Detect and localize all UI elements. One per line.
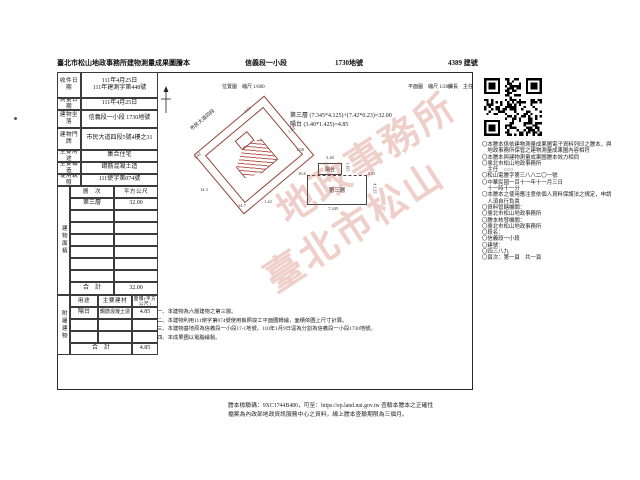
info-label: 使用執照 (57, 174, 81, 186)
info-label: 建物坐落 (57, 110, 81, 128)
north-arrow-icon (160, 86, 172, 114)
notes-block: 一、本建物為六層建物之第三層。 二、本建物利用111使字第074號使用執照竣工平… (157, 308, 457, 342)
plan-dim-top: 3.40 (326, 156, 334, 161)
info-value: 市民大道四段5號4樓之31 (81, 128, 158, 150)
area-total-value: 32.00 (114, 282, 158, 295)
empty-cell (70, 246, 114, 258)
plan-scale-label: 平面圖 縮尺 1/200 (408, 85, 451, 90)
location-dim: 1.42 (264, 200, 272, 205)
document-title: 臺北市松山地政事務所建物測量成果圖謄本 (57, 58, 190, 68)
info-value: 111年4月25日 111年建測字第448號 (81, 72, 158, 98)
empty-cell (70, 234, 114, 246)
info-value-line2: 111年建測字第448號 (93, 85, 147, 92)
info-label: 測量日期 (57, 98, 81, 110)
empty-cell (114, 258, 158, 270)
empty-cell (70, 258, 114, 270)
location-scale-label: 位置圖 縮尺 1/600 (222, 85, 265, 90)
info-value: 鋼筋混凝土造 (81, 162, 158, 174)
annex-use: 陽台 (70, 307, 98, 319)
note-line: 三、本建物基地原為信義段一小段17-1地號，110年1月9日逕為分割為信義段一小… (157, 325, 457, 334)
plan-dim-height: 4.125 (372, 183, 377, 193)
empty-cell (114, 222, 158, 234)
empty-cell (98, 319, 132, 331)
sidebar-line: 〇本謄本之使用應注意依個人資料保護法之規定，申請 (482, 192, 612, 198)
info-label: 收件日期 (57, 72, 81, 98)
land-number: 1730地號 (335, 58, 363, 68)
empty-cell (70, 222, 114, 234)
sidebar-line: 〇頁次：第一頁 共一頁 (482, 255, 612, 261)
formula-floor: 第三層 (7.345*4.125)+(7.42*0.23)=32.00 (290, 113, 392, 119)
annex-col-material: 主要建材 (98, 295, 132, 307)
annex-col-use: 用途 (70, 295, 98, 307)
empty-cell (114, 210, 158, 222)
sidebar-notes: 〇本謄本係依建物測量成果圖電子資料列印之謄本，與 地政事務所保管之建物測量成果圖… (482, 142, 612, 262)
info-value: 信義段一小段 1730地號 (81, 110, 158, 128)
annex-table-title: 附屬建物 (57, 295, 70, 355)
empty-cell (114, 246, 158, 258)
note-line: 一、本建物為六層建物之第三層。 (157, 308, 457, 317)
area-table-title: 建物面積 (57, 186, 70, 295)
annex-total-label: 合 計 (70, 343, 132, 355)
annex-area-value: 4.85 (132, 307, 158, 319)
formula-balcony: 陽台 (3.40*1.425)=4.85 (290, 122, 348, 128)
info-value: 111年4月25日 (81, 98, 158, 110)
info-value: 集合住宅 (81, 150, 158, 162)
info-value-line1: 111年4月25日 (102, 78, 138, 85)
empty-cell (114, 270, 158, 282)
footer-verification-line: 謄本檢驗碼：9XC1744B480，可至：https://ep.land.nat… (228, 404, 433, 410)
empty-cell (98, 331, 132, 343)
area-total-label: 合 計 (70, 282, 114, 295)
area-col-area: 平方公尺 (114, 186, 158, 198)
empty-cell (114, 234, 158, 246)
area-floor: 第三層 (70, 198, 114, 210)
scanned-document-page: 臺北市松山地政事務所建物測量成果圖謄本 信義段一小段 1730地號 4389 建… (0, 0, 640, 480)
scan-artifact-dot (14, 117, 17, 120)
empty-cell (70, 210, 114, 222)
note-line: 四、本成果圖以電腦繪製。 (157, 334, 457, 343)
info-value: 111使字第074號 (81, 174, 158, 186)
signature-label: 課長 主任 (448, 85, 473, 90)
info-label: 主要用途 (57, 150, 81, 162)
street-name-label: 市民大道四段 (190, 109, 216, 132)
balcony-outline: 陽台 (318, 163, 342, 175)
third-floor-label: 第三層 (329, 186, 346, 194)
balcony-label: 陽台 (325, 166, 335, 173)
empty-cell (70, 319, 98, 331)
info-label: 建物門牌 (57, 128, 81, 150)
third-floor-outline: 第三層 (307, 175, 367, 205)
location-dim: 14.7 (238, 204, 246, 209)
building-number: 4389 建號 (448, 58, 478, 68)
empty-cell (132, 331, 158, 343)
empty-cell (70, 331, 98, 343)
info-label: 主要構造 (57, 162, 81, 174)
footer-validity-line: 檔案為內政部地政資訊服務中心之資料，線上謄本查驗期限為三個月。 (228, 413, 408, 419)
empty-cell (70, 270, 114, 282)
area-floor-value: 32.00 (114, 198, 158, 210)
annex-col-area: 面積(平方公尺) (132, 295, 158, 307)
plan-dim-extension: 0.23 (368, 172, 375, 176)
plan-dim-balcony-height: 1.425 (346, 163, 350, 172)
note-line: 二、本建物利用111使字第074號使用執照竣工平面圖轉繪，面積依圖上尺寸計算。 (157, 317, 457, 326)
area-col-floor: 層 次 (70, 186, 114, 198)
empty-cell (132, 319, 158, 331)
annex-total-value: 4.85 (132, 343, 158, 355)
annex-material: 鋼筋混凝土造 (98, 307, 132, 319)
section-name: 信義段一小段 (245, 58, 287, 68)
floor-plan-diagram: 3.40 陽台 1.425 第三層 0.23 4.125 7.345 (296, 148, 396, 218)
location-dim: 14.3 (200, 188, 208, 193)
plan-dim-width: 7.345 (328, 207, 338, 212)
qr-code (484, 78, 542, 136)
